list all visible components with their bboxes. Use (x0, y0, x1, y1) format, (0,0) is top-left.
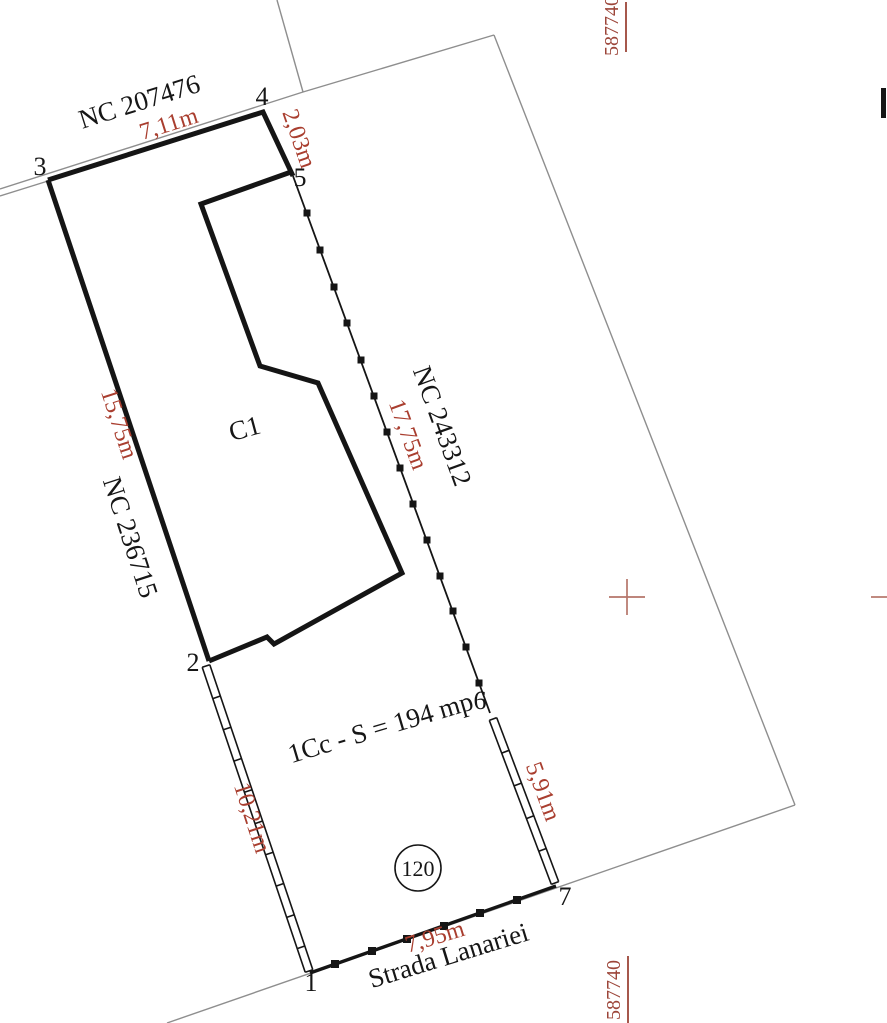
building-label: C1 (226, 410, 264, 447)
grid-cross-icon (609, 579, 645, 615)
point-1: 1 (305, 968, 318, 997)
point-4: 4 (256, 82, 269, 111)
adjacent-parcel-secondary-line (0, 181, 48, 196)
dimension-1-2: 10,21m (228, 779, 275, 856)
adjacent-parcel-wedge-line (277, 0, 303, 92)
point-6: 6 (474, 686, 487, 715)
dimension-6-7: 5,91m (520, 759, 565, 825)
cadastral-plan: NC 207476 NC 243312 NC 236715 7,11m 2,03… (0, 0, 887, 1023)
adjacent-parcel-top-line (0, 35, 494, 189)
point-7: 7 (559, 882, 572, 911)
grid-marks (609, 2, 887, 1023)
plan-number: 120 (402, 856, 435, 881)
point-3: 3 (34, 152, 47, 181)
labels: NC 207476 NC 243312 NC 236715 7,11m 2,03… (34, 0, 626, 1020)
neighbor-parcel-right-edge (494, 35, 795, 805)
dimension-2-3: 15,75m (95, 385, 142, 462)
parcel-boundary (48, 112, 293, 661)
parcel-use-area-label: 1Cc - S = 194 mp (284, 686, 476, 769)
point-2: 2 (187, 648, 200, 677)
coordinate-label-top: 587740 (601, 0, 623, 56)
clipped-edge-element (881, 88, 886, 118)
point-5: 5 (294, 163, 307, 192)
plan-drawing: NC 207476 NC 243312 NC 236715 7,11m 2,03… (0, 0, 887, 1023)
coordinate-label-bottom: 587740 (603, 960, 625, 1020)
